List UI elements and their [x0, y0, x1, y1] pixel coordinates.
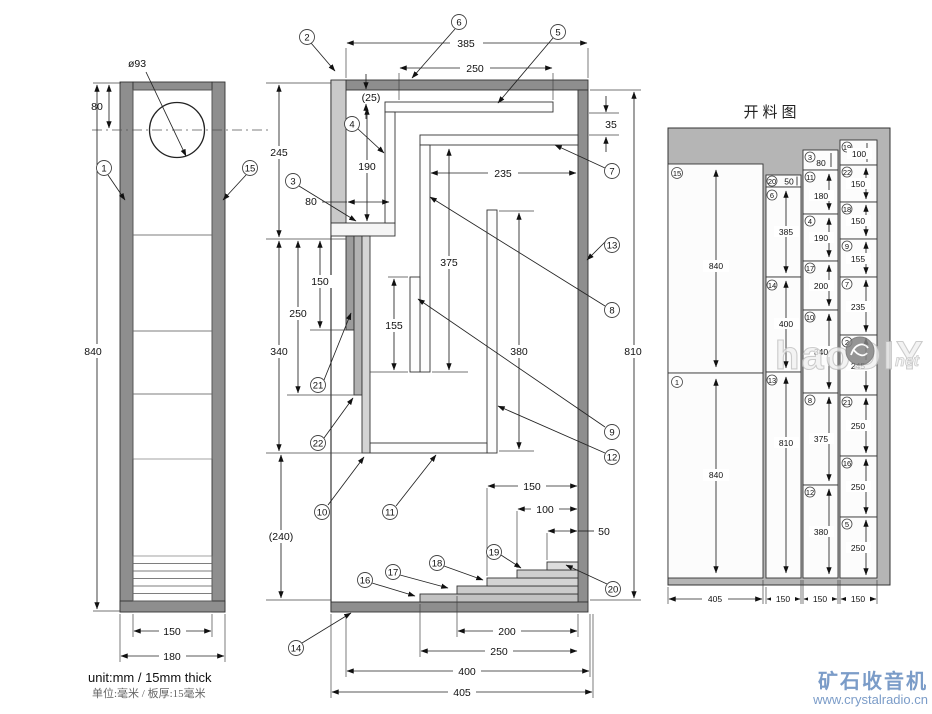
cut-piece-21: 21 250 — [840, 395, 877, 456]
band-strip22 — [133, 235, 212, 331]
svg-text:405: 405 — [708, 594, 722, 604]
dim-250-strip21: 250 — [289, 308, 307, 320]
panel-3-shelf — [331, 223, 395, 236]
dim-190: 190 — [358, 161, 376, 173]
svg-text:17: 17 — [806, 264, 814, 273]
svg-text:12: 12 — [806, 488, 814, 497]
part-label-11: 11 — [385, 508, 395, 519]
svg-text:80: 80 — [816, 158, 826, 168]
panel-7-shelf — [420, 135, 578, 145]
panel-9-fin — [410, 277, 420, 372]
cut-piece-22: 22 150 — [840, 165, 877, 202]
svg-text:250: 250 — [851, 421, 865, 431]
svg-text:14: 14 — [768, 281, 776, 290]
svg-text:150: 150 — [851, 594, 865, 604]
side-panel-right — [212, 82, 225, 612]
part-label-6: 6 — [456, 18, 461, 29]
svg-text:180: 180 — [814, 191, 828, 201]
svg-text:190: 190 — [814, 233, 828, 243]
svg-text:16: 16 — [843, 459, 851, 468]
cut-piece-15: 15 840 — [668, 164, 763, 373]
dim-outer-width: 180 — [163, 651, 181, 663]
top-edge — [133, 82, 212, 90]
svg-text:11: 11 — [806, 173, 814, 182]
dim-340: 340 — [270, 346, 288, 358]
part-label-19: 19 — [489, 548, 500, 559]
part-label-22: 22 — [313, 439, 324, 450]
svg-text:100: 100 — [852, 149, 866, 159]
dim-405: 405 — [453, 687, 471, 699]
svg-text:4: 4 — [808, 217, 812, 226]
watermark-haodiy: haoDIY net — [775, 334, 925, 378]
cut-piece-19: 19 100 — [840, 140, 877, 165]
svg-text:18: 18 — [843, 205, 851, 214]
panel-14-bottom — [331, 602, 588, 612]
dim-step-200: 200 — [498, 626, 516, 638]
part-label-13: 13 — [607, 241, 618, 252]
svg-text:1: 1 — [101, 164, 106, 175]
svg-text:250: 250 — [851, 482, 865, 492]
svg-text:840: 840 — [709, 261, 723, 271]
mouth-slat — [133, 586, 212, 594]
part-label-8: 8 — [609, 306, 614, 317]
part-label-3: 3 — [290, 177, 295, 188]
step-17 — [457, 586, 578, 594]
mouth-slat — [133, 564, 212, 572]
cut-piece-17: 17 200 — [803, 261, 838, 310]
svg-text:7: 7 — [845, 280, 849, 289]
panel-13-back — [578, 90, 588, 602]
svg-text:150: 150 — [813, 594, 827, 604]
footer: unit:mm / 15mm thick 单位:毫米 / 板厚:15毫米 矿石收… — [88, 669, 928, 707]
part-label-14: 14 — [291, 644, 302, 655]
dim-step-150: 150 — [523, 481, 541, 493]
step-16 — [420, 594, 578, 602]
part-label-17: 17 — [388, 568, 399, 579]
part-label-18: 18 — [432, 559, 443, 570]
cut-piece-8: 8 375 — [803, 393, 838, 485]
svg-text:150: 150 — [851, 179, 865, 189]
part-label-15: 15 — [223, 161, 258, 201]
construction-drawing: ø93 80 840 150 180 1 15 — [0, 0, 932, 714]
svg-text:1: 1 — [675, 378, 679, 387]
svg-text:6: 6 — [770, 191, 774, 200]
mouth-slat — [133, 556, 212, 564]
panel-12-vertical — [487, 210, 497, 453]
svg-text:15: 15 — [673, 169, 681, 178]
dim-385: 385 — [457, 38, 475, 50]
svg-text:8: 8 — [808, 396, 812, 405]
part-label-20: 20 — [608, 585, 619, 596]
cut-piece-20: 20 50 — [766, 175, 801, 187]
svg-text:20: 20 — [768, 177, 776, 186]
step-18 — [487, 578, 578, 586]
cut-piece-13: 13 810 — [766, 372, 801, 578]
unit-note-en: unit:mm / 15mm thick — [88, 670, 212, 685]
svg-text:5: 5 — [845, 520, 849, 529]
dim-240-mouth: (240) — [269, 531, 294, 543]
dim-35: 35 — [605, 119, 617, 131]
dim-step-100: 100 — [536, 504, 554, 516]
svg-text:10: 10 — [806, 313, 814, 322]
svg-text:375: 375 — [814, 434, 828, 444]
svg-text:250: 250 — [851, 543, 865, 553]
dim-155: 155 — [385, 320, 403, 332]
cut-piece-12: 12 380 — [803, 485, 838, 578]
dim-245: 245 — [270, 147, 288, 159]
dim-400: 400 — [458, 666, 476, 678]
dim-step-50: 50 — [598, 526, 610, 538]
dim-150-strip22: 150 — [311, 276, 329, 288]
front-view: ø93 80 840 150 180 1 15 — [80, 58, 268, 663]
watermark-logo — [846, 337, 874, 365]
svg-text:50: 50 — [784, 177, 794, 187]
svg-text:155: 155 — [851, 254, 865, 264]
svg-text:400: 400 — [779, 319, 793, 329]
cutting-title: 开料图 — [743, 104, 800, 121]
part-label-9: 9 — [609, 428, 614, 439]
svg-text:810: 810 — [779, 438, 793, 448]
dim-810: 810 — [624, 346, 642, 358]
watermark-suffix: net — [895, 353, 920, 370]
dim-front-height: 840 — [84, 346, 102, 358]
mouth-slat — [133, 571, 212, 579]
part-label-5: 5 — [555, 28, 560, 39]
svg-text:3: 3 — [808, 153, 812, 162]
part-label-2: 2 — [304, 33, 309, 44]
cut-piece-5: 5 250 — [840, 517, 877, 578]
panel-5-shelf — [385, 102, 553, 112]
part-label-4: 4 — [349, 120, 354, 131]
bottom-edge — [120, 601, 225, 612]
cut-piece-16: 16 250 — [840, 456, 877, 517]
dim-80-duct: 80 — [305, 196, 317, 208]
svg-text:200: 200 — [814, 281, 828, 291]
cut-piece-4: 4 190 — [803, 214, 838, 261]
panel-8-vertical — [420, 145, 430, 372]
part-label-21: 21 — [313, 381, 324, 392]
side-panel-left — [120, 82, 133, 612]
panel-2-front-top — [331, 80, 346, 223]
cut-piece-3: 3 80 — [803, 150, 838, 170]
part-label-12: 12 — [607, 453, 618, 464]
svg-text:150: 150 — [851, 216, 865, 226]
step-19 — [517, 570, 578, 578]
section-view: 385 250 (25) 190 80 235 35 — [262, 15, 648, 700]
svg-text:22: 22 — [843, 168, 851, 177]
svg-text:385: 385 — [779, 227, 793, 237]
dim-inner-width: 150 — [163, 626, 181, 638]
cut-piece-9: 9 155 — [840, 239, 877, 277]
cut-piece-6: 6 385 — [766, 187, 801, 277]
cut-piece-1: 1 840 — [668, 373, 763, 578]
dim-380: 380 — [510, 346, 528, 358]
svg-text:21: 21 — [843, 398, 851, 407]
dim-375: 375 — [440, 257, 458, 269]
panel-4-vertical — [385, 112, 395, 223]
mouth-slat — [133, 579, 212, 587]
dim-235: 235 — [494, 168, 512, 180]
speaker-plan-page: ø93 80 840 150 180 1 15 — [0, 0, 932, 714]
panel-21-strip — [354, 236, 362, 395]
dim-step-250: 250 — [490, 646, 508, 658]
unit-note-cn: 单位:毫米 / 板厚:15毫米 — [92, 686, 206, 700]
mouth-slat — [133, 594, 212, 602]
panel-10-strip — [362, 236, 370, 453]
dim-gap25: (25) — [362, 92, 381, 104]
svg-text:150: 150 — [776, 594, 790, 604]
band-strip21 — [133, 331, 212, 394]
cut-piece-18: 18 150 — [840, 202, 877, 239]
part-label-10: 10 — [317, 508, 328, 519]
dim-hole-dia: ø93 — [128, 58, 146, 70]
cut-piece-7: 7 235 — [840, 277, 877, 335]
site-url: www.crystalradio.cn — [812, 692, 928, 707]
panel-11-horizontal — [370, 443, 487, 453]
dim-250-shelf: 250 — [466, 63, 484, 75]
svg-text:15: 15 — [245, 164, 256, 175]
svg-text:9: 9 — [845, 242, 849, 251]
svg-text:840: 840 — [709, 470, 723, 480]
part-label-16: 16 — [360, 576, 371, 587]
part-label-7: 7 — [609, 167, 614, 178]
panel-6-top — [346, 80, 588, 90]
band-strip10 — [133, 394, 212, 459]
cut-piece-11: 11 180 — [803, 170, 838, 214]
site-name: 矿石收音机 — [818, 669, 928, 693]
svg-text:235: 235 — [851, 302, 865, 312]
svg-text:380: 380 — [814, 527, 828, 537]
